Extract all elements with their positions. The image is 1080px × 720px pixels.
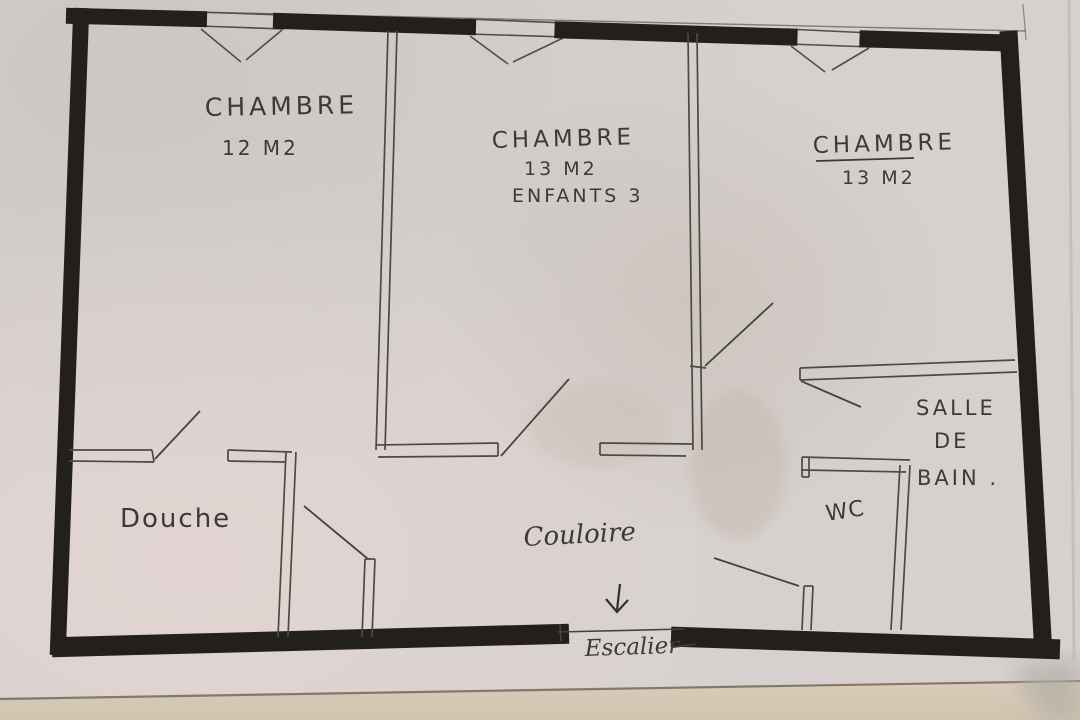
wall-top-1 (74, 16, 199, 19)
bedroom-2-label: CHAMBRE (491, 124, 635, 154)
shower-label: Douche (120, 504, 231, 534)
bathroom-label-2: DE (934, 429, 969, 453)
bedroom-2-note: ENFANTS 3 (512, 185, 643, 207)
bedroom-3-label: CHAMBRE (812, 129, 956, 159)
hallway-label: Couloire (523, 517, 637, 553)
bathroom-label-1: SALLE (916, 396, 996, 420)
floor-plan-sketch: CHAMBRE 12 M2 CHAMBRE 13 M2 ENFANTS 3 CH… (0, 0, 1080, 720)
bathroom-label-3: BAIN . (917, 466, 999, 490)
bedroom-1-area: 12 M2 (222, 136, 299, 160)
wall-bottom-left (62, 634, 559, 647)
bedroom-2-area: 13 M2 (524, 158, 598, 180)
floor-plan-photo: CHAMBRE 12 M2 CHAMBRE 13 M2 ENFANTS 3 CH… (0, 0, 1080, 720)
bedroom-3-area: 13 M2 (842, 167, 916, 189)
wall-top-3 (563, 30, 789, 37)
bedroom-1-label: CHAMBRE (205, 90, 359, 122)
paper-stain-small (690, 390, 786, 540)
wall-bottom-right (681, 637, 1050, 649)
paper-background (0, 0, 1080, 720)
staircase-label: Escalier (583, 633, 681, 662)
wall-top-2 (281, 21, 468, 27)
wall-top-4 (868, 39, 1008, 43)
